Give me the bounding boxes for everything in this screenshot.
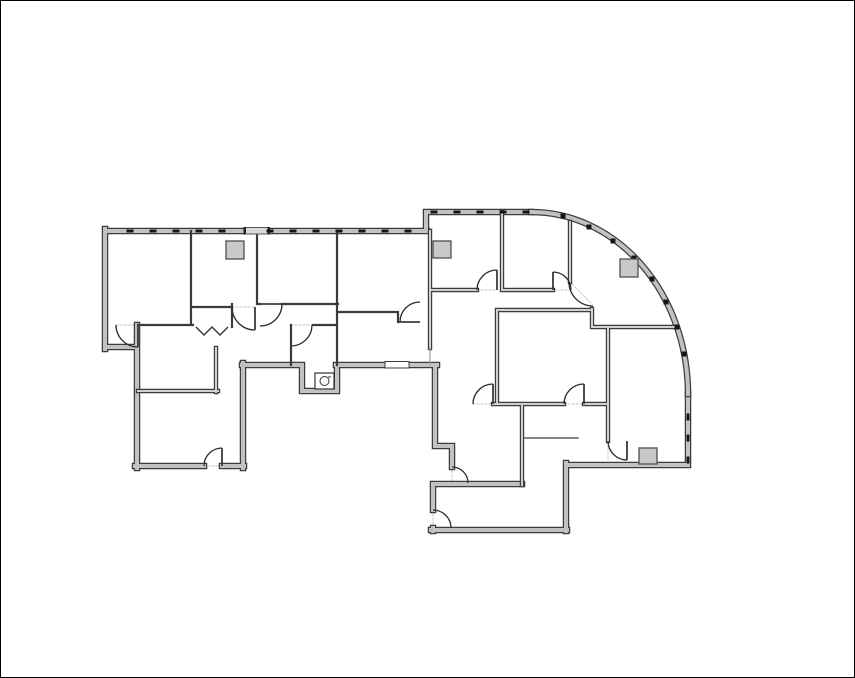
door-swing-arc (569, 282, 593, 306)
door-mid-office (399, 302, 420, 322)
column-marker (226, 241, 244, 259)
column-marker (620, 259, 638, 277)
door-swing-arc (608, 441, 627, 460)
door-restroom (291, 325, 312, 346)
entry-door-recess (244, 227, 271, 235)
window-tick (290, 230, 297, 233)
door-se-room (608, 441, 627, 460)
door-swing-arc (291, 325, 312, 346)
window-tick (561, 214, 566, 219)
exterior-walls (105, 212, 688, 531)
sink-icon (315, 373, 334, 389)
floor-plan-canvas (0, 0, 855, 678)
partition-walls-major-stroke (138, 212, 677, 485)
partition-walls-stroke (138, 231, 398, 365)
door-curved-room (569, 282, 593, 306)
entry-door-jamb (244, 227, 247, 235)
door-closet-a (232, 307, 255, 330)
window-tick (405, 230, 412, 233)
window-tick (150, 230, 157, 233)
window-tick (313, 230, 320, 233)
door-swing-arc (260, 304, 282, 326)
bifold-doors-icon (196, 327, 228, 335)
partition-walls-major (138, 212, 677, 485)
window-tick (127, 230, 134, 233)
window-tick (587, 225, 592, 230)
door-center-room-w (473, 384, 493, 404)
window-tick (196, 230, 203, 233)
window-tick (650, 277, 655, 282)
sink-basin (315, 373, 334, 389)
window-tick (687, 457, 690, 464)
window-tick (336, 230, 343, 233)
door-office-r1 (477, 270, 497, 290)
door-swing-arc (400, 302, 420, 322)
window-tick (267, 230, 274, 233)
partition-walls (138, 231, 398, 365)
window-tick (382, 230, 389, 233)
door-swing-arc (473, 384, 493, 404)
window-tick (682, 352, 687, 357)
floorplan-svg (0, 0, 855, 678)
image-border (1, 1, 855, 678)
window-tick (500, 211, 507, 214)
door-closet-b (260, 304, 282, 326)
window-tick (523, 211, 530, 214)
floor-plan-page (0, 0, 855, 678)
window-tick (664, 300, 669, 305)
window-tick (454, 211, 461, 214)
window-tick (431, 211, 438, 214)
window-tick (611, 239, 616, 244)
window-tick (219, 230, 226, 233)
partition-walls-major-stroke (138, 212, 677, 485)
window-ticks (127, 211, 690, 464)
exterior-walls-stroke (105, 212, 688, 531)
window-tick (477, 211, 484, 214)
column-marker (433, 241, 451, 258)
door-center-room-e (564, 384, 584, 404)
door-swing-arc (564, 384, 584, 404)
door-swing-arc (477, 270, 497, 290)
column-marker (639, 448, 657, 464)
glass-sidelight (385, 362, 409, 369)
window-tick (687, 435, 690, 442)
window-tick (687, 414, 690, 421)
window-tick (173, 230, 180, 233)
window-tick (675, 325, 680, 330)
entry-door (245, 228, 268, 235)
exterior-walls-stroke (105, 212, 688, 531)
window-tick (359, 230, 366, 233)
door-swing-arc (232, 307, 255, 330)
